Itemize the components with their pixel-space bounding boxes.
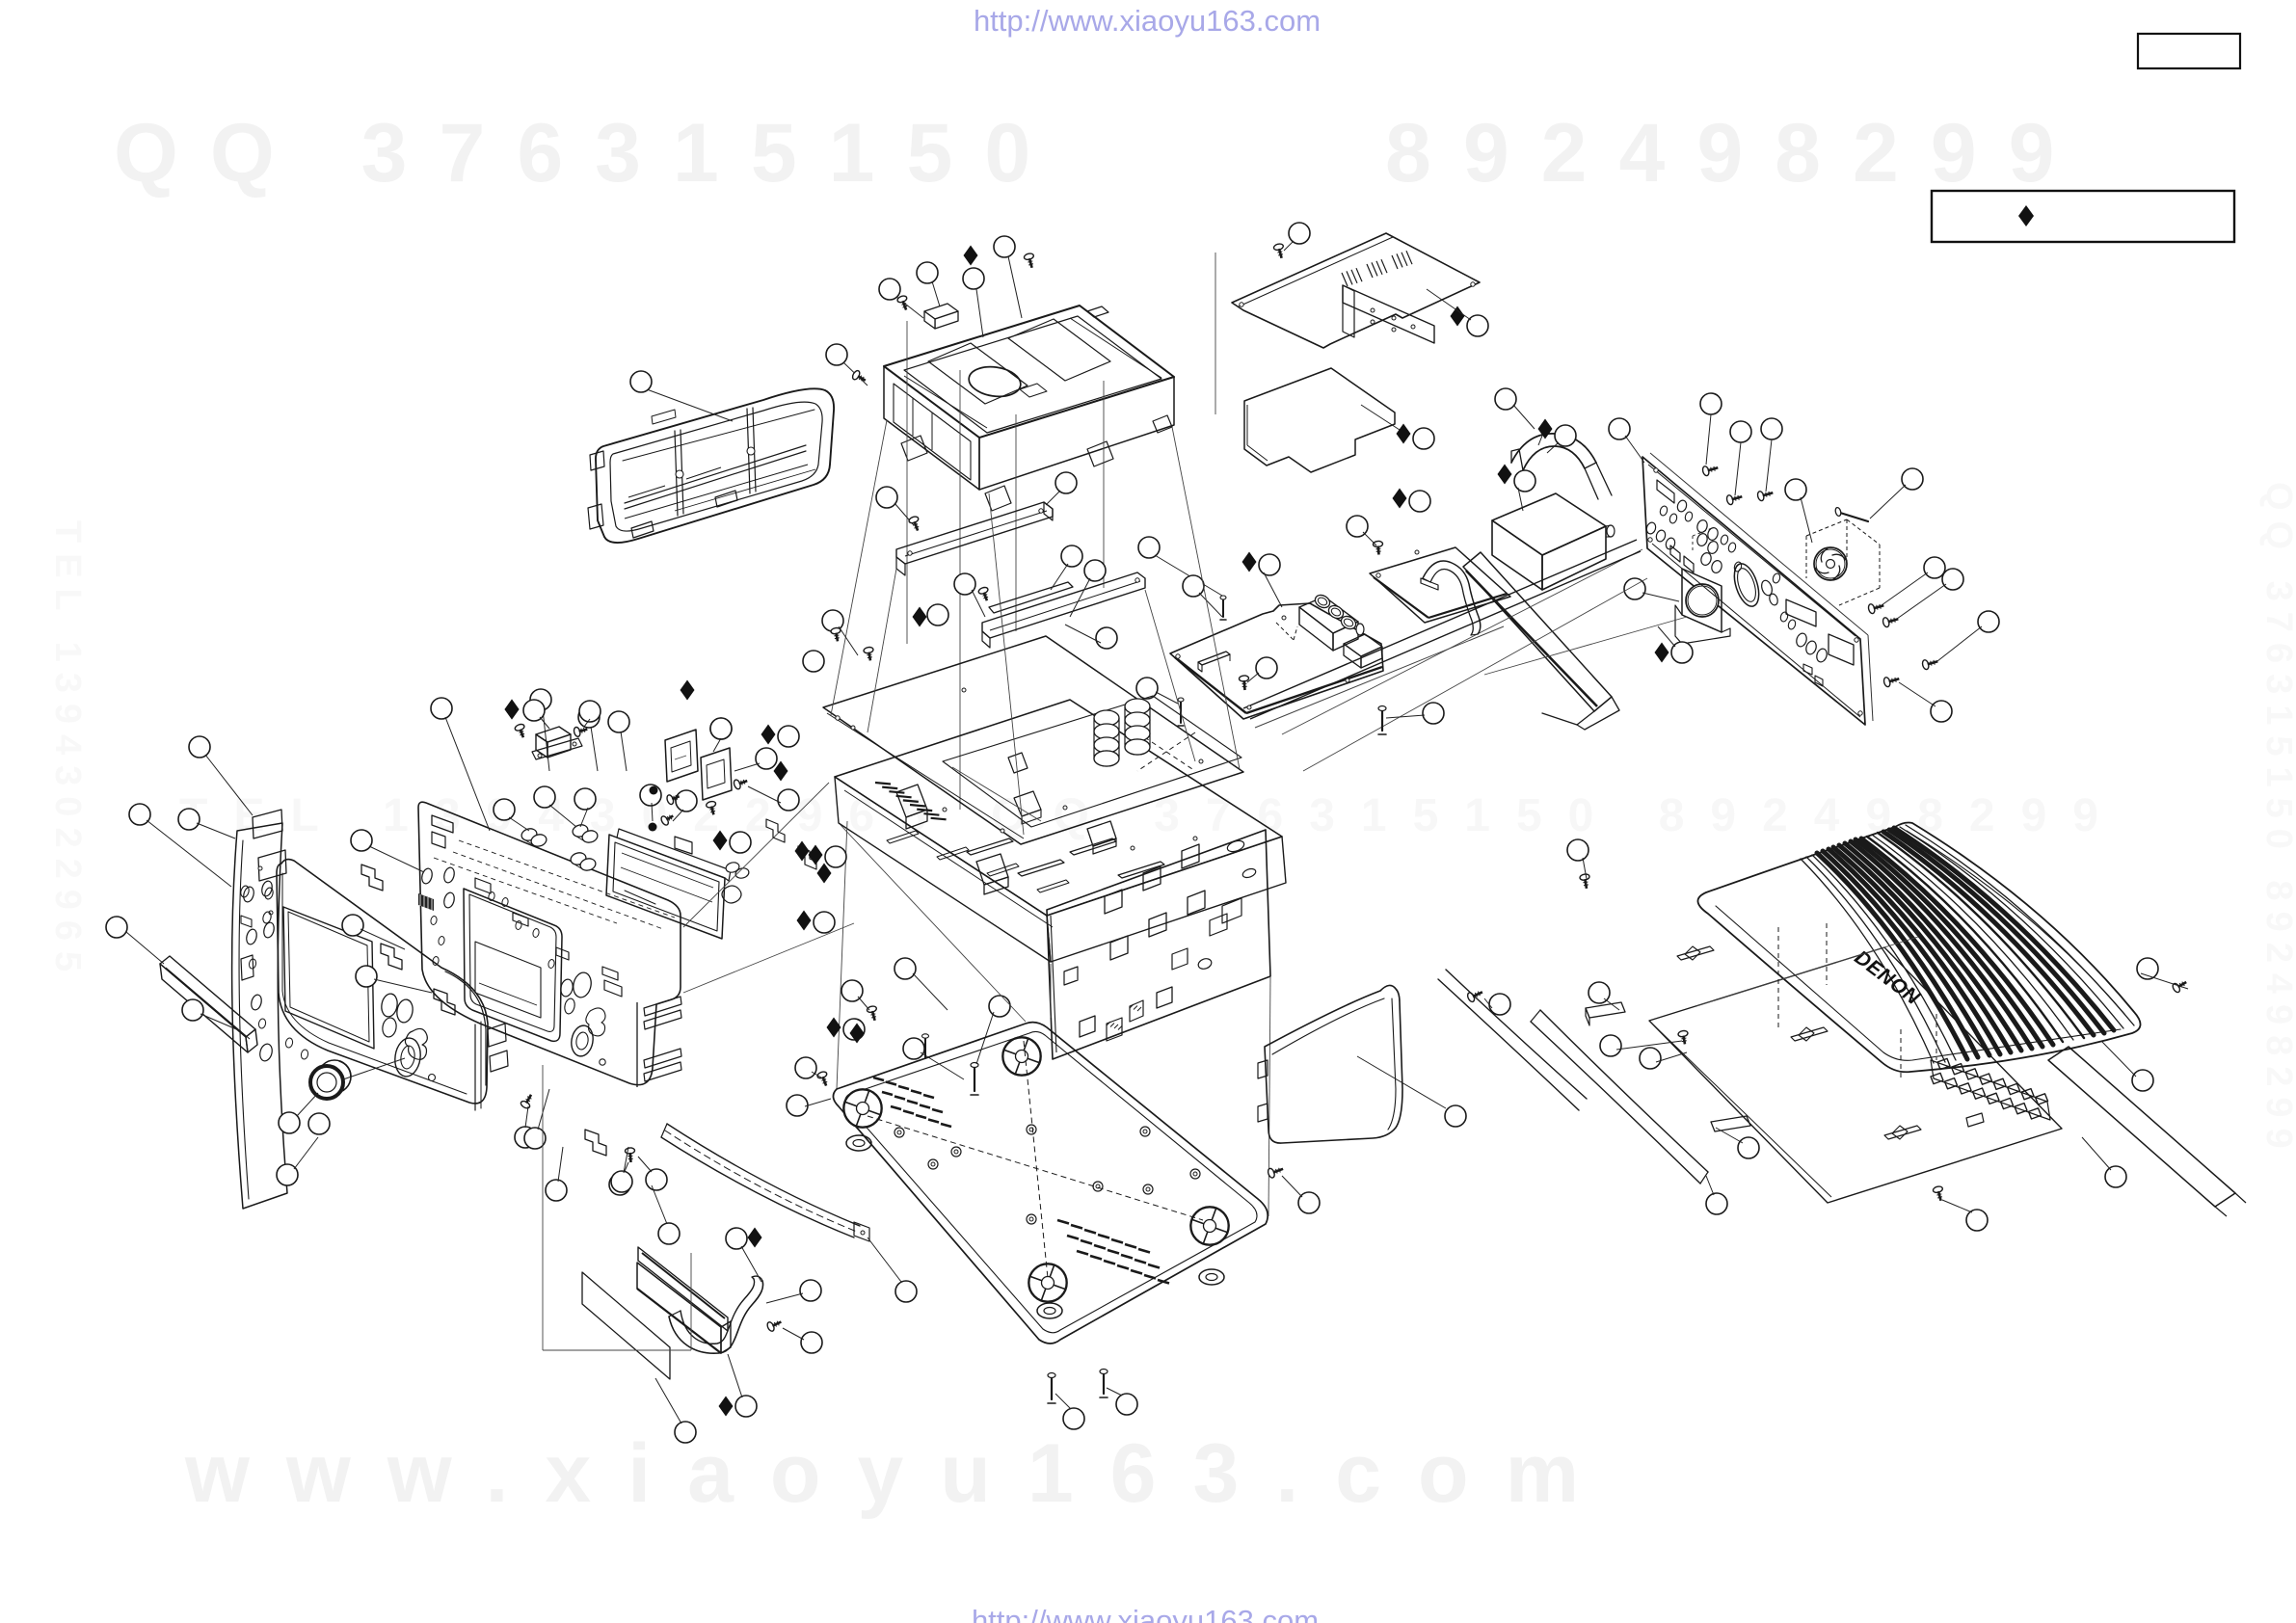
svg-text:http://www.xiaoyu163.com: http://www.xiaoyu163.com [972, 1604, 1319, 1623]
svg-text:www.xiaoyu163.com: www.xiaoyu163.com [184, 1427, 1615, 1520]
svg-text:http://www.xiaoyu163.com: http://www.xiaoyu163.com [974, 4, 1321, 38]
svg-text:TEL 13943022965: TEL 13943022965 [47, 520, 88, 982]
svg-text:QQ 376315150 892498299: QQ 376315150 892498299 [2258, 482, 2296, 1159]
svg-text:TEL 13943022965 QQ 376315150: TEL 13943022965 QQ 376315150 892498299 [179, 790, 2124, 841]
svg-text:892498299: 892498299 [1385, 107, 2086, 200]
svg-text:QQ 376315150: QQ 376315150 [114, 107, 1062, 200]
